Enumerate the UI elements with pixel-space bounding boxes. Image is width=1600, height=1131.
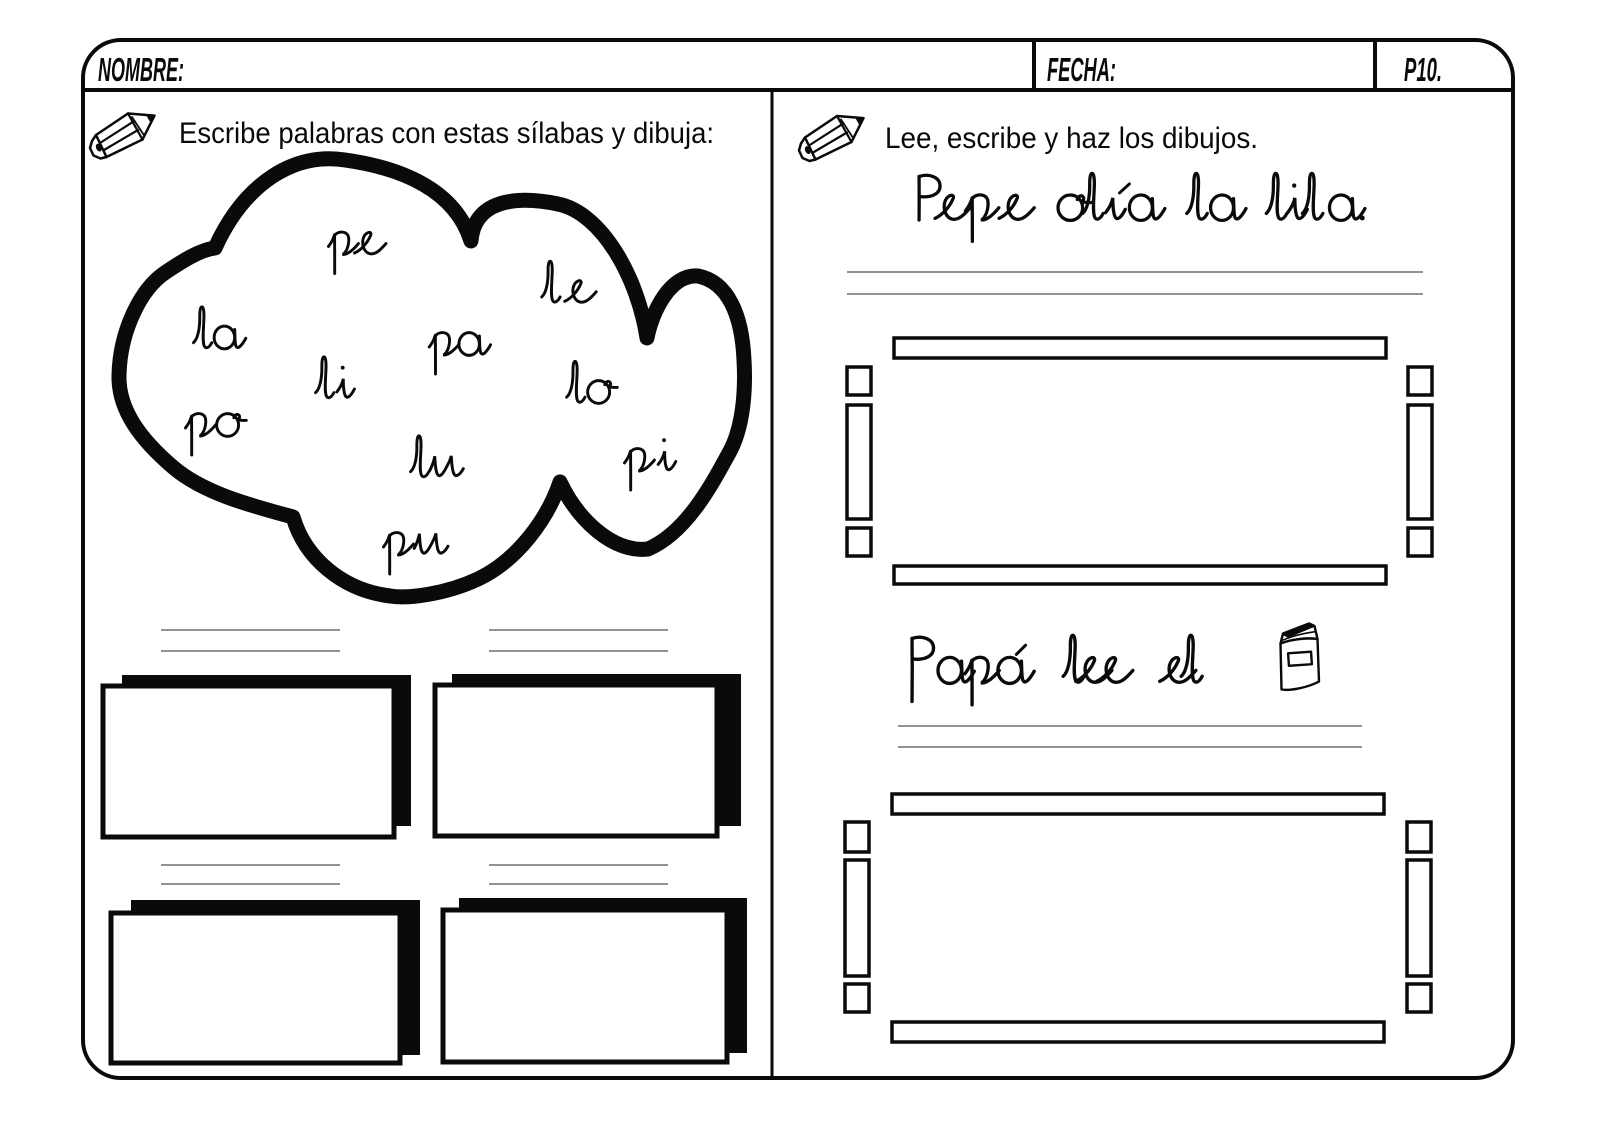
svg-text:NOMBRE:: NOMBRE: xyxy=(98,51,184,88)
svg-text:Lee, escribe y haz los dibujos: Lee, escribe y haz los dibujos. xyxy=(885,122,1258,155)
svg-text:P10.: P10. xyxy=(1404,51,1442,88)
svg-text:FECHA:: FECHA: xyxy=(1047,51,1116,88)
svg-text:Escribe palabras con estas síl: Escribe palabras con estas sílabas y dib… xyxy=(179,117,714,150)
